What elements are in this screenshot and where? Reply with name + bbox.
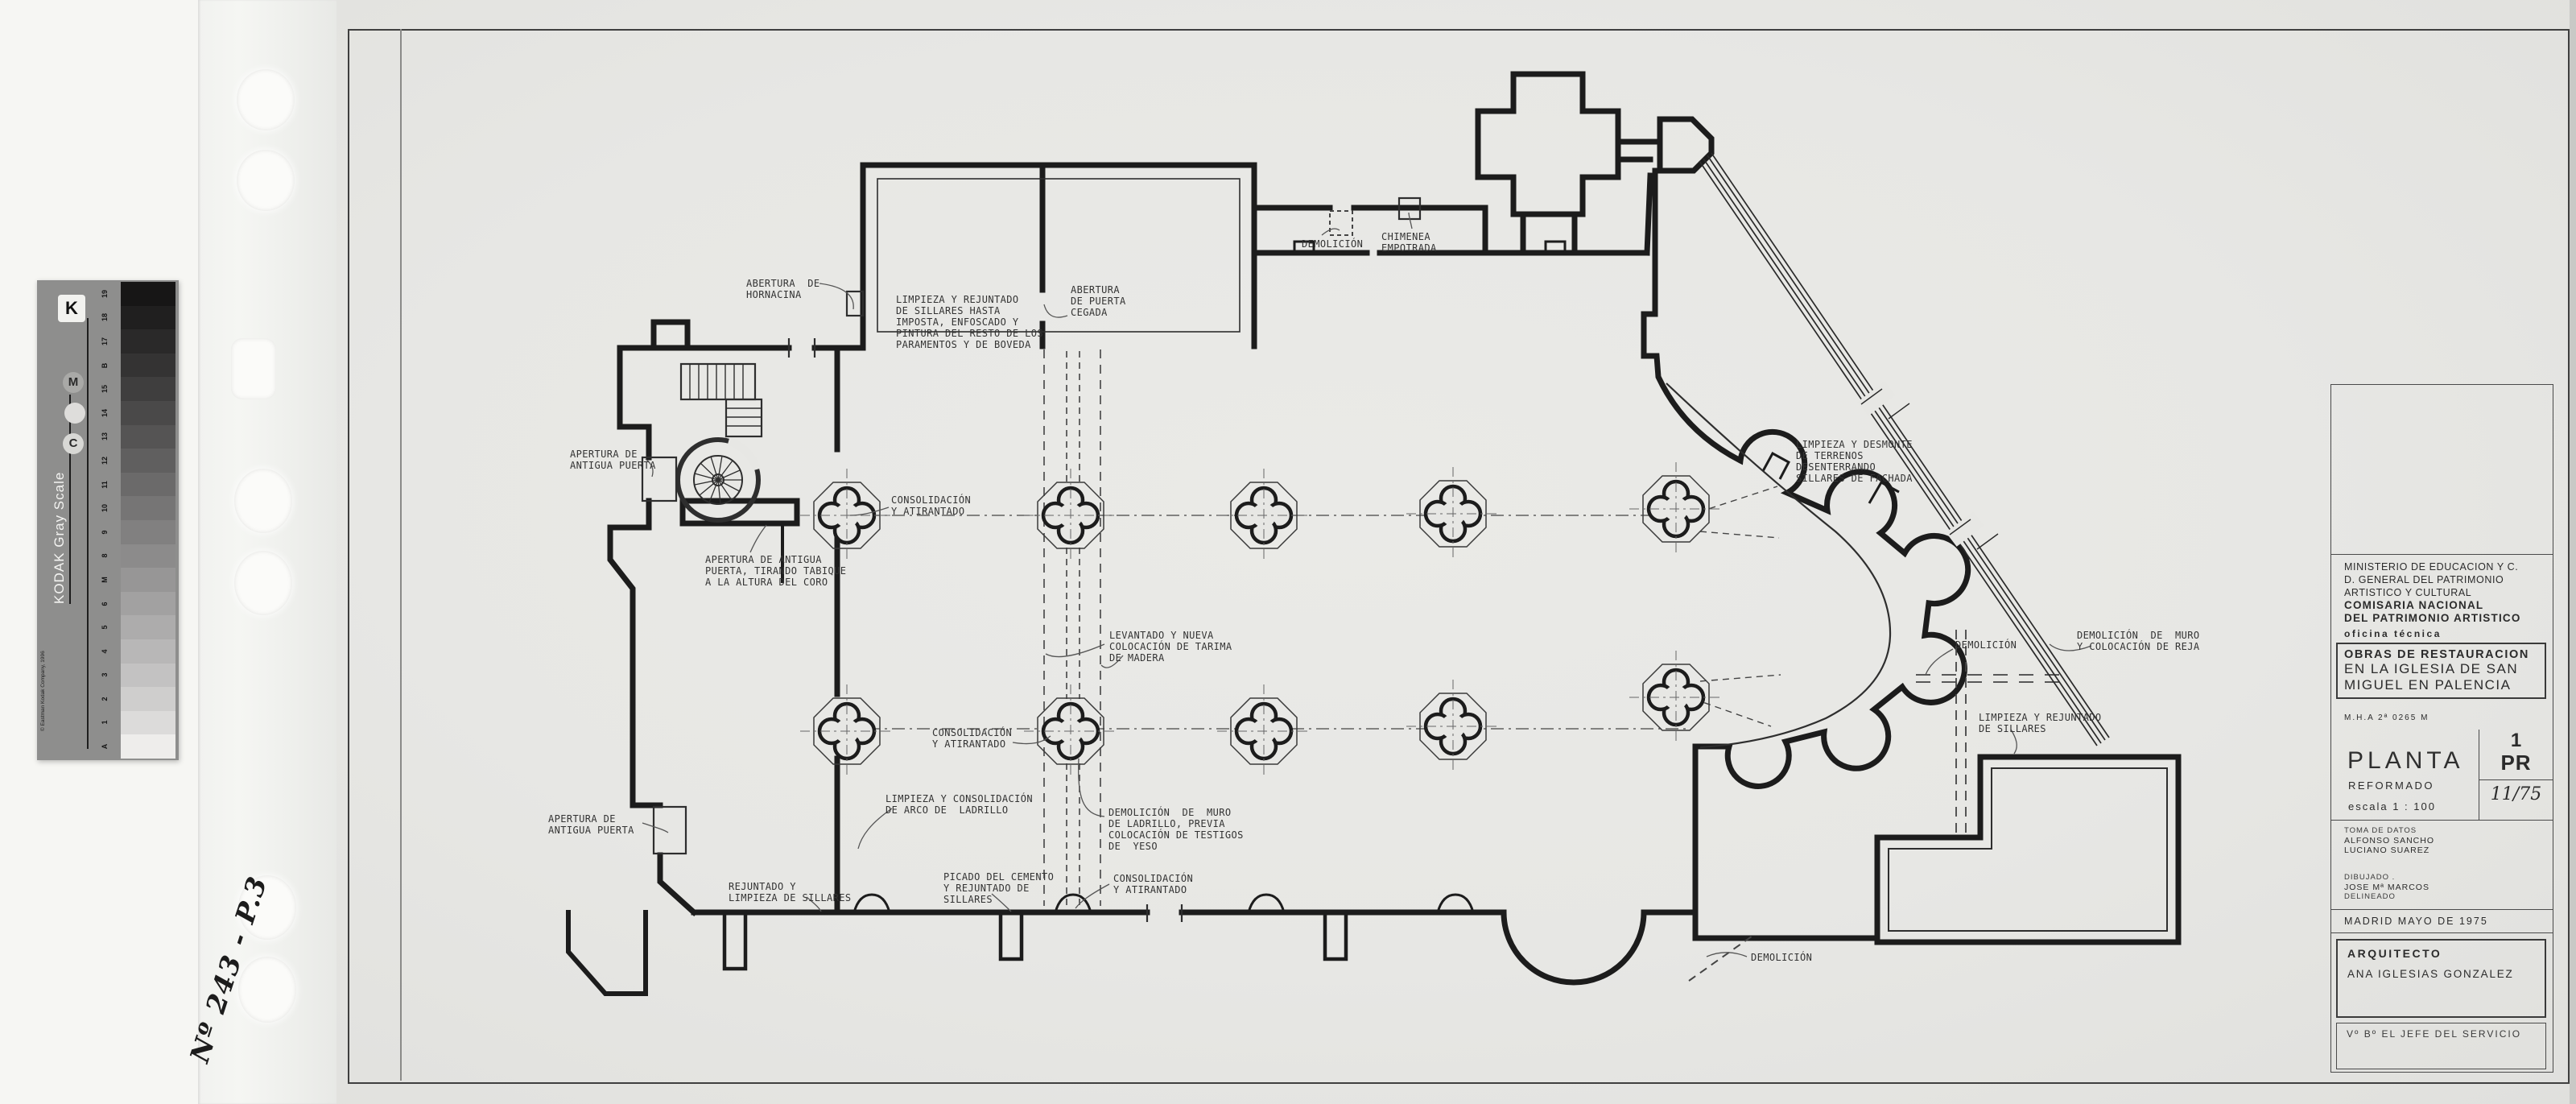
sheet-title: PLANTA: [2347, 747, 2463, 775]
data-team-member: LUCIANO SUAREZ: [2344, 846, 2434, 855]
thin-linework: [642, 179, 2167, 931]
sheet-subtitle: REFORMADO: [2348, 779, 2434, 792]
plan-annotation: LEVANTADO Y NUEVA COLOCACIÓN DE TARIMA D…: [1109, 630, 1232, 664]
archive-reference: M.H.A 2ª 0265 M: [2344, 713, 2429, 722]
project-title-box: OBRAS DE RESTAURACION EN LA IGLESIA DE S…: [2336, 643, 2546, 699]
ministry-line: MINISTERIO DE EDUCACION Y C.: [2344, 560, 2540, 573]
comisaria-line: DEL PATRIMONIO ARTISTICO: [2344, 612, 2540, 625]
plan-annotation: CONSOLIDACIÓN Y ATIRANTADO: [891, 494, 971, 517]
plan-annotation: APERTURA DE ANTIGUA PUERTA: [570, 449, 656, 471]
comisaria-line: COMISARIA NACIONAL: [2344, 599, 2540, 612]
project-title-line: EN LA IGLESIA DE SAN: [2344, 661, 2538, 677]
office-label: oficina técnica: [2344, 627, 2540, 640]
sheet-code: PR: [2479, 750, 2553, 775]
title-block-empty-box: [2331, 385, 2553, 555]
ministry-line: D. GENERAL DEL PATRIMONIO: [2344, 573, 2540, 586]
title-block: MINISTERIO DE EDUCACION Y C. D. GENERAL …: [2330, 384, 2553, 1073]
sheet-number: 1: [2479, 731, 2553, 750]
plan-annotation: LIMPIEZA Y DESMONTE DE TERRENOS DESENTER…: [1796, 439, 1913, 484]
drawn-by: JOSE Mª MARCOS: [2344, 883, 2434, 892]
team-section: TOMA DE DATOS ALFONSO SANCHO LUCIANO SUA…: [2344, 826, 2434, 902]
plan-annotation: ABERTURA DE PUERTA CEGADA: [1071, 284, 1126, 318]
plan-annotation: LIMPIEZA Y REJUNTADO DE SILLARES: [1979, 712, 2102, 734]
data-team-member: ALFONSO SANCHO: [2344, 836, 2434, 846]
architect-box: ARQUITECTO ANA IGLESIAS GONZALEZ: [2336, 939, 2546, 1018]
plan-annotation: CHIMENEA EMPOTRADA: [1381, 231, 1437, 254]
plan-annotation: CONSOLIDACIÓN Y ATIRANTADO: [932, 727, 1012, 750]
project-title-line: OBRAS DE RESTAURACION: [2344, 648, 2538, 661]
project-title-line: MIGUEL EN PALENCIA: [2344, 677, 2538, 693]
plan-annotation: APERTURA DE ANTIGUA PUERTA, TIRANDO TABI…: [705, 554, 846, 588]
plan-annotation: CONSOLIDACIÓN Y ATIRANTADO: [1113, 873, 1193, 895]
sheet-title-section: PLANTA REFORMADO escala 1 : 100 1 PR 11/…: [2331, 730, 2553, 821]
plan-annotation: LIMPIEZA Y REJUNTADO DE SILLARES HASTA I…: [896, 294, 1043, 350]
place-date: MADRID MAYO DE 1975: [2331, 909, 2553, 933]
plan-annotation: PICADO DEL CEMENTO Y REJUNTADO DE SILLAR…: [943, 871, 1054, 905]
plan-annotation: DEMOLICIÓN: [1751, 952, 1812, 963]
plan-annotation: DEMOLICIÓN DE MURO DE LADRILLO, PREVIA C…: [1108, 807, 1244, 852]
plan-annotation: APERTURA DE ANTIGUA PUERTA: [548, 813, 634, 836]
drawn-sub-label: DELINEADO: [2344, 892, 2434, 902]
plan-annotation: DEMOLICIÓN: [1955, 639, 2017, 651]
masonry-walls: [568, 74, 2178, 994]
architect-label: ARQUITECTO: [2347, 947, 2535, 960]
plan-annotation: REJUNTADO Y LIMPIEZA DE SILLARES: [729, 881, 852, 903]
scale-label: escala 1 : 100: [2348, 800, 2436, 812]
ministry-line: ARTISTICO Y CULTURAL: [2344, 586, 2540, 599]
data-team-label: TOMA DE DATOS: [2344, 826, 2434, 836]
sheet-date-code: 11/75: [2479, 784, 2553, 804]
architect-name: ANA IGLESIAS GONZALEZ: [2347, 968, 2535, 980]
buttresses: [724, 242, 1899, 969]
plan-annotation: DEMOLICIÓN: [1302, 238, 1363, 250]
drawn-label: DIBUJADO .: [2344, 873, 2434, 883]
plan-annotation: ABERTURA DE HORNACINA: [746, 278, 820, 300]
scanned-architectural-plan: { "colors": { "paper": "#e7e7e4", "ink":…: [0, 0, 2576, 1104]
divider: [2479, 779, 2553, 780]
plan-annotation: LIMPIEZA Y CONSOLIDACIÓN DE ARCO DE LADR…: [885, 793, 1033, 816]
sheet-number-box: 1 PR 11/75: [2479, 730, 2553, 821]
ministry-block: MINISTERIO DE EDUCACION Y C. D. GENERAL …: [2331, 557, 2553, 643]
floor-plan-drawing: [0, 0, 2576, 1104]
plan-annotation: DEMOLICIÓN DE MURO Y COLOCACIÓN DE REJA: [2077, 630, 2200, 652]
leader-lines: [642, 213, 2091, 957]
approval-box: Vº Bº EL JEFE DEL SERVICIO: [2336, 1023, 2546, 1069]
